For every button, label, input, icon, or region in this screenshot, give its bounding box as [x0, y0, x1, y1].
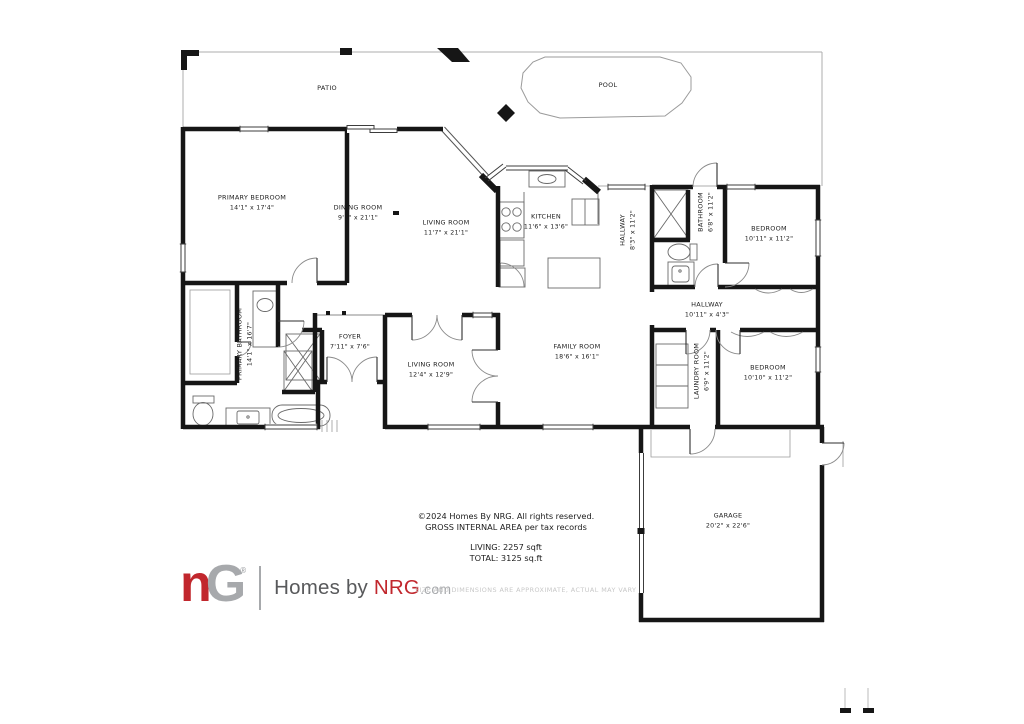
room-label-living-room: LIVING ROOM11'7" x 21'1"	[423, 218, 470, 237]
room-label-bathroom: BATHROOM6'8" x 11'2"	[696, 192, 715, 232]
kitchen-island	[548, 258, 600, 288]
kitchen-sink	[529, 171, 565, 187]
stove	[499, 202, 524, 238]
page-corner-marks	[840, 688, 874, 713]
footer-logo: nG® Homes by NRG.com	[180, 560, 451, 616]
washer-dryer	[656, 344, 688, 408]
primary-toilet-bowl	[193, 403, 213, 426]
copyright-block: ©2024 Homes By NRG. All rights reserved.…	[418, 511, 595, 564]
toilet-tank	[690, 244, 697, 260]
diagonal-slider-window	[442, 127, 489, 179]
room-label-dining-room: DINING ROOM9'1" x 21'1"	[334, 203, 383, 222]
fixtures	[190, 171, 843, 467]
gross-area-line: GROSS INTERNAL AREA per tax records	[418, 522, 595, 533]
room-label-patio: PATIO	[317, 84, 337, 94]
room-label-kitchen: KITCHEN11'6" x 13'6"	[524, 212, 568, 231]
disclaimer-text: SIZE AND DIMENSIONS ARE APPROXIMATE, ACT…	[415, 586, 636, 594]
primary-vanity-1	[253, 291, 278, 347]
room-label-family-room: FAMILY ROOM18'6" x 16'1"	[553, 342, 600, 361]
primary-toilet-tank	[193, 396, 214, 403]
logo-divider	[259, 566, 261, 610]
room-label-primary-bathroom: PRIMARY BATHROOM14'1" x 16'7"	[235, 308, 254, 380]
patio-corner-marks	[181, 48, 515, 122]
living-area: LIVING: 2257 sqft	[418, 542, 595, 553]
pantry-cabinet	[499, 268, 525, 287]
patio-outline	[183, 52, 822, 186]
room-label-foyer: FOYER7'11" x 7'6"	[330, 332, 370, 351]
room-label-living-room: LIVING ROOM12'4" x 12'9"	[408, 360, 455, 379]
floorplan-drawing	[0, 0, 1024, 724]
room-label-laundry-room: LAUNDRY ROOM6'9" x 11'2"	[692, 343, 711, 399]
room-label-primary-bedroom: PRIMARY BEDROOM14'1" x 17'4"	[218, 193, 286, 212]
copyright-line: ©2024 Homes By NRG. All rights reserved.	[418, 511, 595, 522]
room-label-bedroom: BEDROOM10'10" x 11'2"	[744, 363, 793, 382]
closet-shelves	[190, 290, 230, 374]
room-label-bedroom: BEDROOM10'11" x 11'2"	[745, 224, 794, 243]
room-label-hallway: HALLWAY8'3" x 11'2"	[618, 210, 637, 250]
floorplan-page: PATIOPOOLPRIMARY BEDROOM14'1" x 17'4"DIN…	[0, 0, 1024, 724]
room-label-garage: GARAGE20'2" x 22'6"	[706, 511, 750, 530]
toilet-bowl	[668, 244, 690, 260]
room-label-hallway: HALLWAY10'11" x 4'3"	[685, 300, 729, 319]
room-label-pool: POOL	[599, 81, 618, 91]
nrg-logo-icon: nG®	[180, 558, 246, 610]
fridge	[572, 199, 599, 225]
dishwasher	[500, 240, 524, 266]
plan-ticks	[326, 211, 399, 315]
